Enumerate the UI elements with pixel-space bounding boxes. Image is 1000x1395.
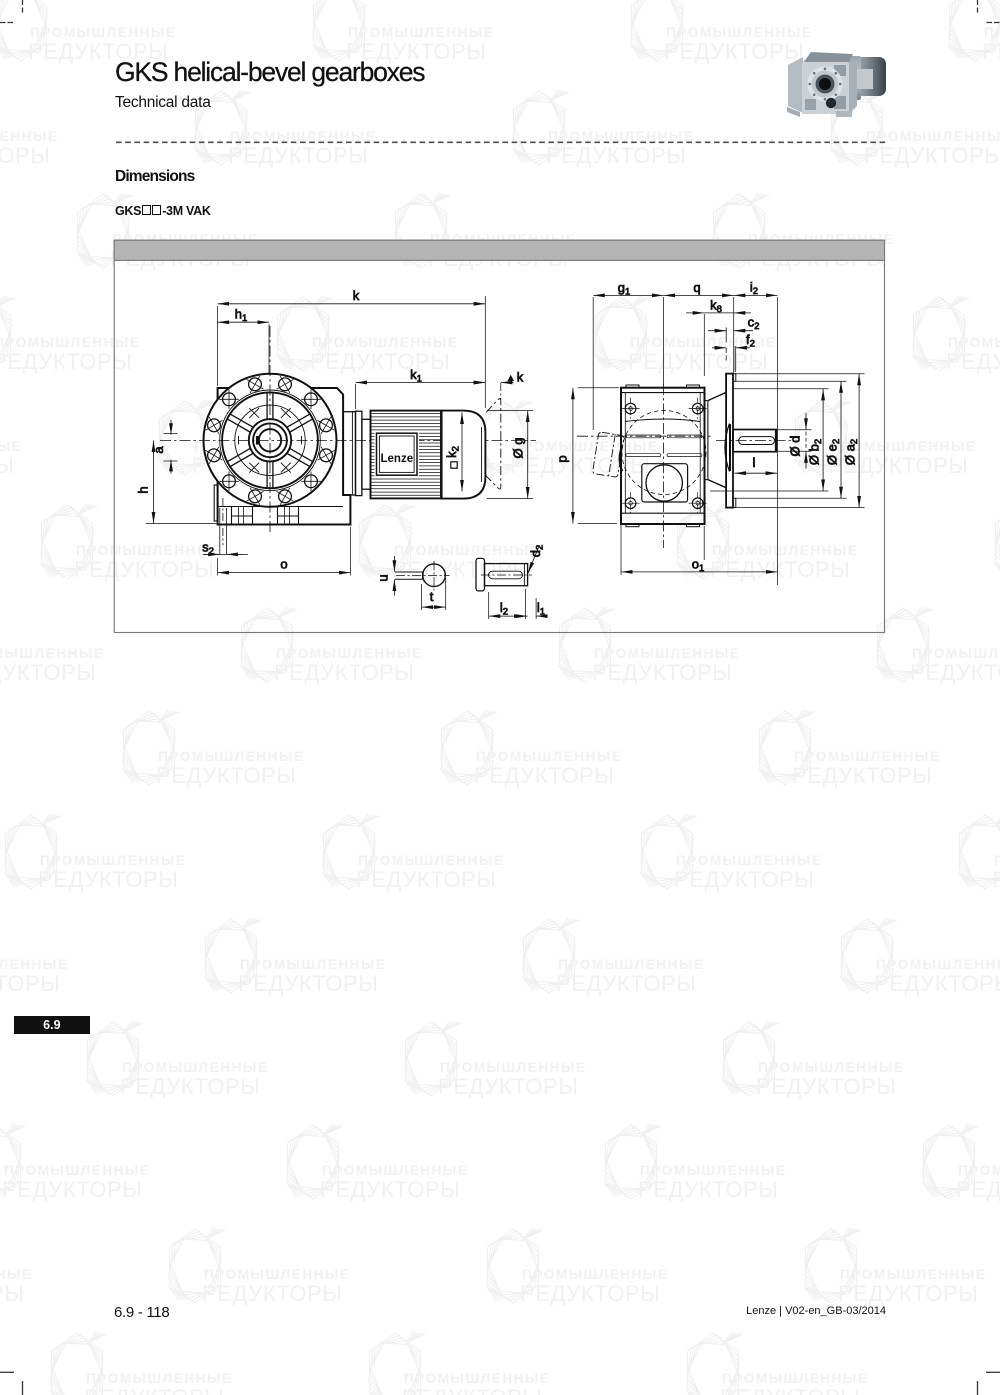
svg-text:Ø e2: Ø e2 — [825, 439, 843, 465]
svg-text:Lenze: Lenze — [381, 453, 414, 465]
svg-text:k8: k8 — [710, 298, 722, 316]
svg-text:i2: i2 — [750, 280, 758, 298]
svg-text:l1: l1 — [537, 600, 545, 618]
svg-text:k: k — [517, 370, 524, 385]
svg-text:l: l — [753, 455, 756, 470]
svg-text:h: h — [136, 486, 151, 493]
svg-text:Ø b2: Ø b2 — [807, 439, 825, 465]
svg-text:Ø g: Ø g — [511, 438, 526, 459]
svg-text:l2: l2 — [500, 600, 508, 618]
svg-text:h1: h1 — [235, 307, 248, 325]
svg-text:t: t — [430, 589, 434, 604]
svg-text:Ø d: Ø d — [788, 436, 803, 457]
svg-text:o1: o1 — [692, 557, 705, 575]
svg-text:p: p — [555, 455, 570, 462]
svg-text:q: q — [693, 280, 700, 295]
svg-text:g1: g1 — [618, 280, 631, 298]
svg-text:o: o — [280, 557, 287, 572]
svg-text:k: k — [353, 288, 360, 303]
svg-text:c2: c2 — [748, 315, 760, 333]
svg-text:u: u — [376, 574, 391, 581]
